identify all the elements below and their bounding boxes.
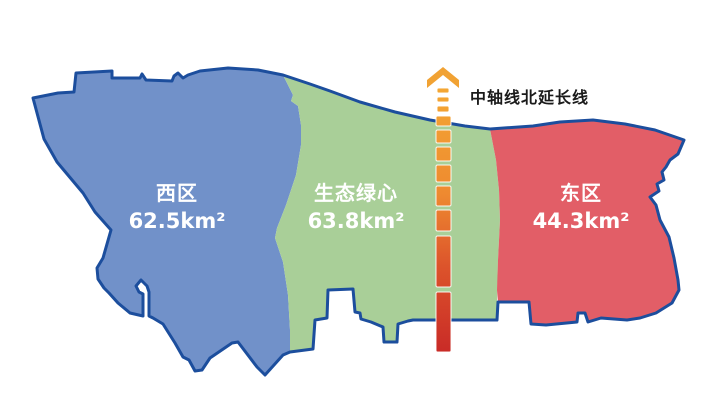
region-green-heart-shape: [275, 75, 500, 352]
district-map-canvas: 西区 62.5km² 生态绿心 63.8km² 东区 44.3km² 中轴线北延…: [0, 0, 718, 407]
region-east-shape: [490, 120, 684, 325]
district-map-svg: [0, 0, 718, 407]
axis-north-arrow-icon: [427, 67, 459, 88]
axis-label: 中轴线北延长线: [470, 89, 589, 107]
